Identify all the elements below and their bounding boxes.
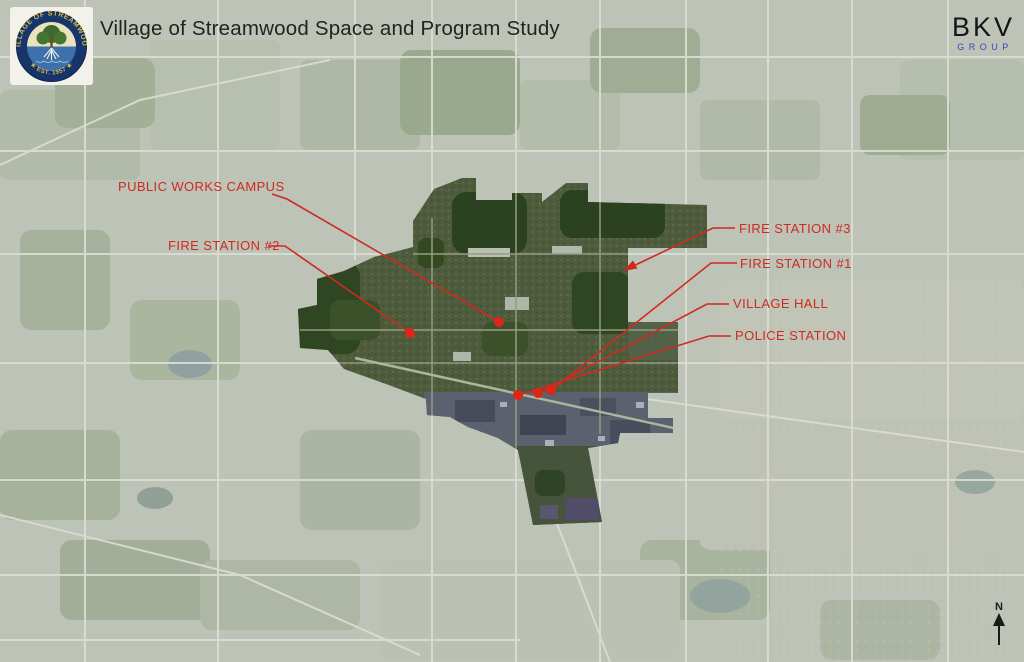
label-public-works-campus: PUBLIC WORKS CAMPUS xyxy=(118,179,285,194)
marker-dot-public-works xyxy=(494,317,504,327)
seal-icon: VILLAGE OF STREAMWOOD ★ EST. 1957 ★ xyxy=(10,7,93,85)
label-fire-station-2: FIRE STATION #2 xyxy=(168,238,280,253)
north-arrow-icon xyxy=(992,613,1006,647)
marker-dot-fire-station-2 xyxy=(405,328,415,338)
slide: VILLAGE OF STREAMWOOD ★ EST. 1957 ★ Vill… xyxy=(0,0,1024,662)
label-police-station: POLICE STATION xyxy=(735,328,846,343)
label-fire-station-3: FIRE STATION #3 xyxy=(739,221,851,236)
label-fire-station-1: FIRE STATION #1 xyxy=(740,256,852,271)
marker-dot-fire-station-1 xyxy=(546,385,556,395)
north-indicator: N xyxy=(986,602,1012,652)
page-title: Village of Streamwood Space and Program … xyxy=(100,17,560,41)
north-label: N xyxy=(986,602,1012,613)
marker-dot-village-hall xyxy=(533,388,543,398)
village-seal-logo: VILLAGE OF STREAMWOOD ★ EST. 1957 ★ xyxy=(10,7,93,90)
label-village-hall: VILLAGE HALL xyxy=(733,296,828,311)
brand-subtitle: GROUP xyxy=(952,42,1014,52)
aerial-map xyxy=(0,0,1024,662)
marker-dot-police-station xyxy=(513,390,523,400)
bkv-group-logo: BKV GROUP xyxy=(952,14,1014,52)
brand-name: BKV xyxy=(952,14,1014,41)
